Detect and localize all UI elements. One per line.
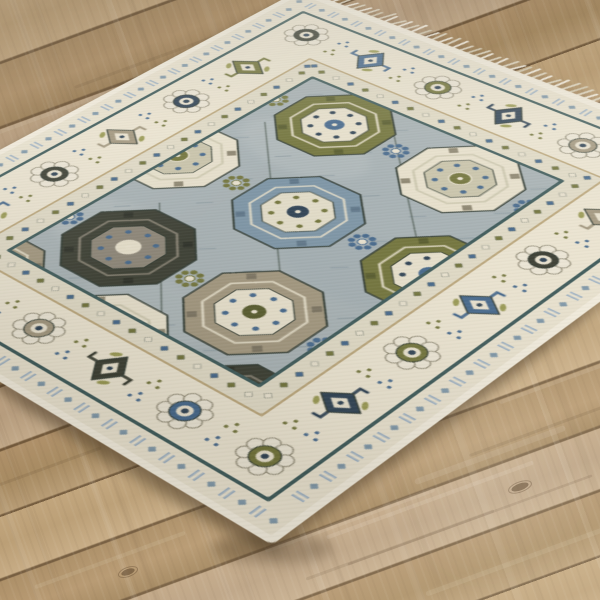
wood-knot	[120, 567, 135, 577]
wood-grain-streak	[425, 523, 600, 596]
wood-grain-streak	[34, 531, 186, 589]
wood-grain-streak	[347, 474, 592, 565]
wood-grain-streak	[469, 403, 600, 457]
rug-product-photo	[0, 0, 600, 600]
wood-grain-streak	[0, 446, 102, 493]
wood-knot	[510, 481, 529, 494]
